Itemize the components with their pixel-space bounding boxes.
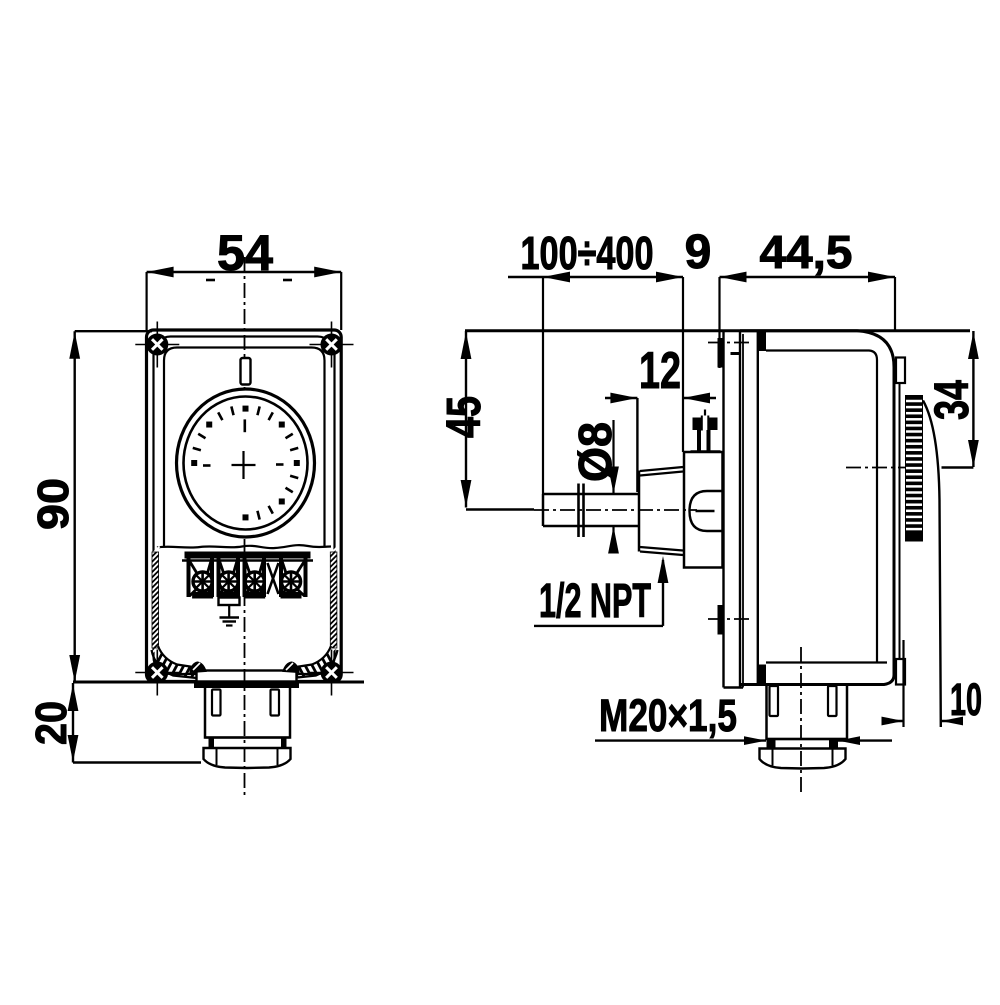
svg-text:34: 34 [926,380,979,420]
svg-text:45: 45 [438,396,491,438]
svg-text:1/2 NPT: 1/2 NPT [539,575,651,628]
svg-text:Ø8: Ø8 [569,422,621,482]
svg-text:90: 90 [29,478,78,530]
svg-text:100÷400: 100÷400 [521,227,654,279]
svg-text:44,5: 44,5 [760,226,853,278]
svg-text:54: 54 [217,225,273,281]
svg-text:M20×1,5: M20×1,5 [599,690,737,741]
svg-text:12: 12 [639,342,681,400]
svg-text:20: 20 [27,701,76,745]
svg-text:10: 10 [950,674,982,725]
svg-text:9: 9 [685,226,712,279]
